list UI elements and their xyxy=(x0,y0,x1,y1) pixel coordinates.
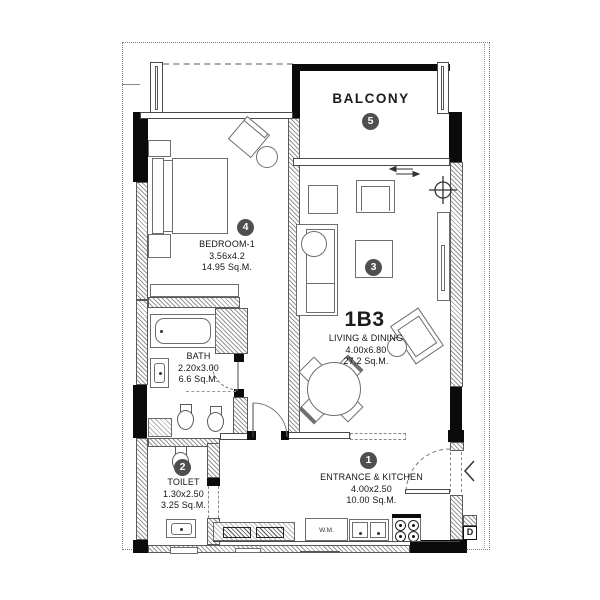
balcony-label: BALCONY xyxy=(301,91,441,106)
grid-marker-crosshair xyxy=(429,176,457,204)
entry-direction-arrow xyxy=(465,461,474,481)
living-dims: 4.00x6.80 xyxy=(310,345,422,357)
bath-label: BATH 2.20x3.00 6.6 Sq.M. xyxy=(156,351,241,386)
toilet-area: 3.25 Sq.M. xyxy=(141,500,226,512)
bedroom-number-badge: 4 xyxy=(237,219,254,236)
entrance-dims: 4.00x2.50 xyxy=(309,484,434,496)
annotation-overlay xyxy=(0,0,600,600)
balcony-name: BALCONY xyxy=(332,91,409,106)
entrance-area: 10.00 Sq.M. xyxy=(309,495,434,507)
toilet-label: TOILET 1.30x2.50 3.25 Sq.M. xyxy=(141,477,226,512)
bedroom-door-arc xyxy=(253,403,287,437)
living-name: LIVING & DINING xyxy=(310,333,422,345)
floor-plan: W.M. D BALCONY 5 4 BEDROO xyxy=(0,0,600,600)
sliding-door-arrows xyxy=(390,167,419,177)
toilet-name: TOILET xyxy=(141,477,226,489)
living-area: 27.2 Sq.M. xyxy=(310,356,422,368)
bedroom-label: BEDROOM-1 3.56x4.2 14.95 Sq.M. xyxy=(177,239,277,274)
bedroom-dims: 3.56x4.2 xyxy=(177,251,277,263)
bath-dims: 2.20x3.00 xyxy=(156,363,241,375)
toilet-number-badge: 2 xyxy=(174,459,191,476)
living-label: LIVING & DINING 4.00x6.80 27.2 Sq.M. xyxy=(310,333,422,368)
living-number-badge: 3 xyxy=(365,259,382,276)
entrance-label: ENTRANCE & KITCHEN 4.00x2.50 10.00 Sq.M. xyxy=(309,472,434,507)
entrance-number-badge: 1 xyxy=(360,452,377,469)
bath-name: BATH xyxy=(156,351,241,363)
unit-code: 1B3 xyxy=(312,308,417,332)
bath-area: 6.6 Sq.M. xyxy=(156,374,241,386)
balcony-number-badge: 5 xyxy=(362,113,379,130)
toilet-dims: 1.30x2.50 xyxy=(141,489,226,501)
bedroom-area: 14.95 Sq.M. xyxy=(177,262,277,274)
bedroom-name: BEDROOM-1 xyxy=(177,239,277,251)
entrance-name: ENTRANCE & KITCHEN xyxy=(309,472,434,484)
